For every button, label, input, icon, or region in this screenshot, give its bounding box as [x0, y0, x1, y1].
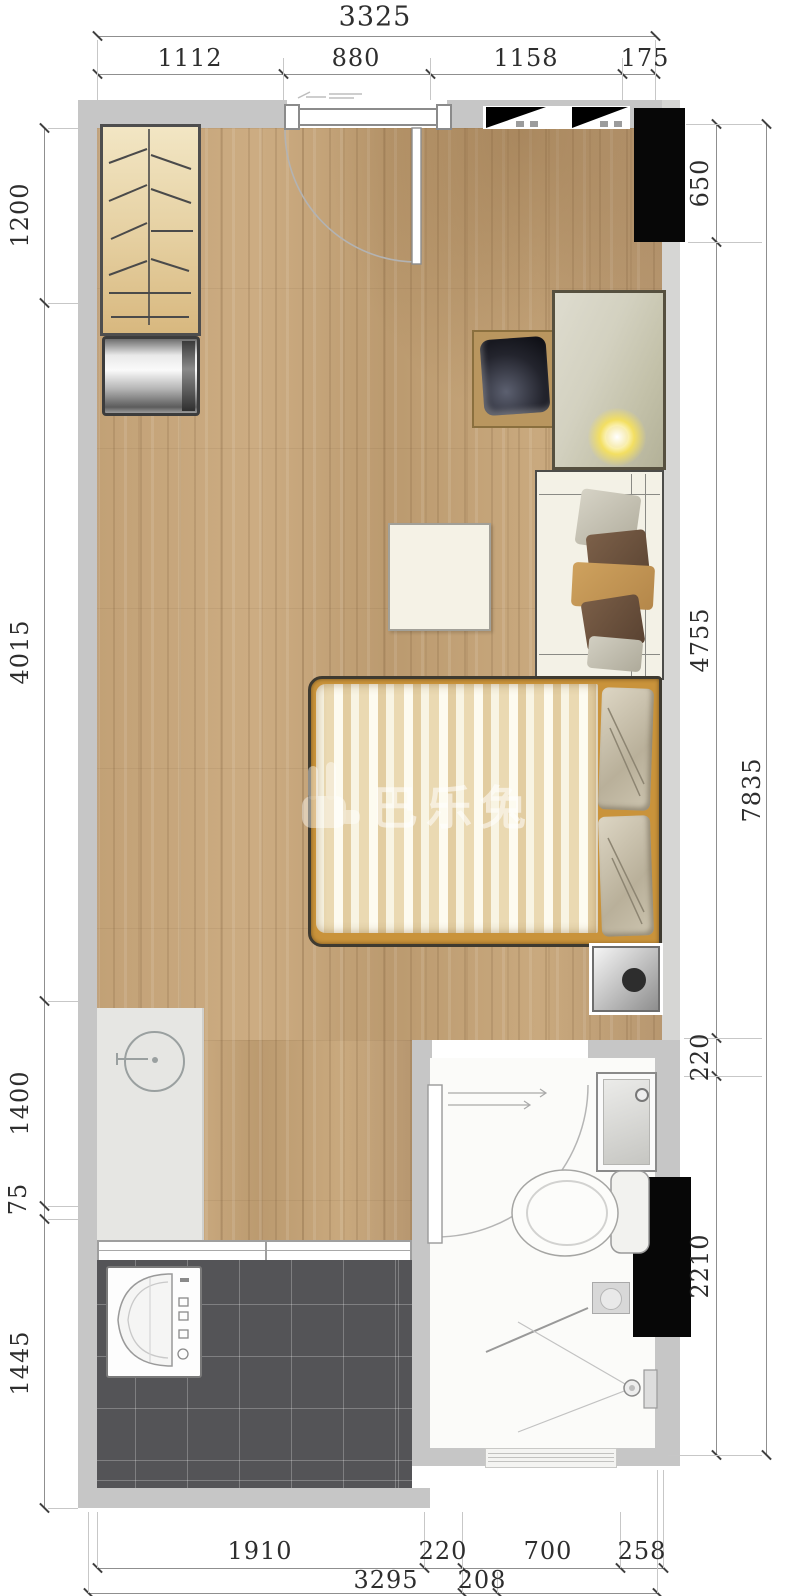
dim-top-seg-4: 175 — [621, 46, 670, 70]
nightstand — [592, 946, 660, 1012]
desk-chair — [479, 336, 550, 416]
shaft-top-right — [634, 108, 685, 242]
dim-top-seg-2: 880 — [332, 46, 381, 70]
dim-top-total: 3325 — [339, 4, 412, 31]
sliding-door-frame-left — [97, 1242, 99, 1262]
dim-bottom-3: 700 — [524, 1539, 573, 1563]
dim-right-1: 650 — [688, 159, 712, 208]
coffee-table — [388, 523, 491, 631]
refrigerator — [102, 336, 200, 416]
kitchen-faucet-line — [116, 1058, 148, 1060]
dim-line-left — [44, 128, 45, 1508]
watermark-text: 巴乐兔 — [372, 772, 534, 838]
window-mark-3 — [600, 121, 608, 127]
dim-top-seg-3: 1158 — [493, 46, 558, 70]
window-mark-1 — [516, 121, 524, 127]
door-annotation-scribble — [296, 88, 366, 102]
window-mark-2 — [530, 121, 538, 127]
dim-bottom-4: 258 — [618, 1539, 667, 1563]
sofa-pillow-gray-bottom — [587, 636, 644, 673]
dim-bottom-2: 220 — [419, 1539, 468, 1563]
entry-door-jamb-right — [436, 104, 452, 130]
bathroom-sink-faucet — [635, 1088, 649, 1102]
toilet — [505, 1165, 655, 1261]
shower-threshold — [485, 1448, 617, 1468]
dim-right-3: 220 — [688, 1033, 712, 1082]
shower-area — [480, 1298, 665, 1438]
wall-bottom-balcony — [78, 1488, 430, 1508]
dim-line-right-total — [766, 124, 767, 1455]
sliding-door-frame-mid — [265, 1242, 267, 1262]
wall-left — [78, 100, 97, 1508]
dim-left-5: 1445 — [8, 1330, 32, 1395]
bathroom-sink — [596, 1072, 657, 1172]
dim-right-2: 4755 — [688, 607, 712, 672]
entry-door-leaf-closed — [298, 108, 438, 126]
dim-left-2: 4015 — [8, 619, 32, 684]
washing-machine — [106, 1266, 202, 1378]
dim-line-top-total — [97, 36, 655, 37]
dim-line-top-segments — [97, 74, 655, 75]
window-mark-4 — [614, 121, 622, 127]
floor-plan: 巴乐兔 3325 1112 880 1158 175 1200 4015 140… — [0, 0, 800, 1596]
sliding-door-rail — [97, 1250, 412, 1251]
bed-pillow-creases — [600, 688, 654, 938]
kitchen-sink-dot — [152, 1057, 158, 1063]
washing-machine-drum — [108, 1268, 198, 1372]
exterior-gap-bottom-right — [430, 1466, 680, 1508]
entry-door-swing-arc — [283, 128, 423, 270]
wardrobe — [100, 124, 201, 336]
sliding-door-frame-right — [410, 1242, 412, 1262]
dim-right-4: 2210 — [688, 1233, 712, 1298]
dim-bottom-total-1: 3295 — [353, 1568, 418, 1592]
dim-left-1: 1200 — [8, 182, 32, 247]
dim-right-total: 7835 — [740, 757, 764, 822]
dim-bottom-1: 1910 — [227, 1539, 292, 1563]
dim-top-seg-1: 1112 — [157, 46, 222, 70]
kitchen-faucet-tick — [116, 1053, 118, 1065]
bathroom-door-opening — [432, 1040, 588, 1058]
dim-bottom-total-2: 208 — [458, 1568, 507, 1592]
refrigerator-side-panel — [182, 341, 195, 411]
dim-line-right — [716, 124, 717, 1455]
nightstand-knob — [622, 968, 646, 992]
dim-left-4: 75 — [6, 1183, 30, 1216]
desk-lamp-icon — [606, 426, 628, 448]
wardrobe-hanger-lines — [103, 127, 195, 329]
watermark-rabbit-logo — [300, 762, 362, 830]
dim-left-3: 1400 — [8, 1070, 32, 1135]
